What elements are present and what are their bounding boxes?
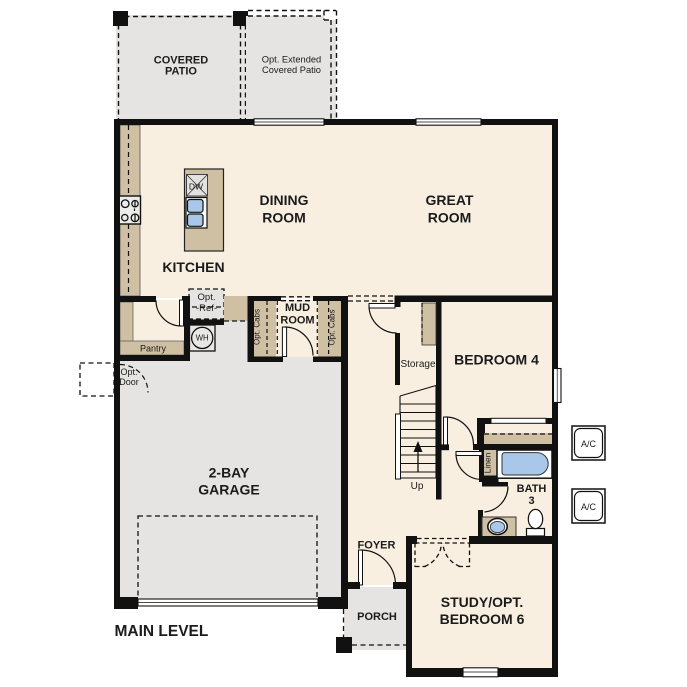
svg-text:PATIO: PATIO — [165, 66, 197, 78]
svg-text:DINING: DINING — [260, 192, 309, 208]
svg-text:Pantry: Pantry — [140, 344, 167, 354]
svg-text:Covered Patio: Covered Patio — [262, 65, 321, 75]
svg-text:ROOM: ROOM — [428, 210, 472, 226]
svg-text:Up: Up — [411, 481, 424, 492]
svg-text:MUD: MUD — [285, 302, 310, 314]
svg-text:3: 3 — [528, 495, 534, 507]
svg-text:Opt.: Opt. — [120, 367, 137, 377]
svg-text:KITCHEN: KITCHEN — [162, 259, 224, 275]
svg-text:DW: DW — [189, 182, 203, 192]
svg-text:Door: Door — [119, 377, 139, 387]
svg-text:2-BAY: 2-BAY — [209, 465, 250, 481]
svg-text:Opt. Extended: Opt. Extended — [262, 55, 321, 65]
svg-text:MAIN LEVEL: MAIN LEVEL — [115, 623, 209, 640]
svg-text:Storage: Storage — [400, 359, 435, 370]
svg-text:GARAGE: GARAGE — [198, 482, 259, 498]
svg-text:ROOM: ROOM — [262, 210, 306, 226]
svg-text:A/C: A/C — [581, 502, 597, 512]
svg-text:BEDROOM 4: BEDROOM 4 — [454, 352, 539, 368]
svg-text:BATH: BATH — [517, 483, 547, 495]
svg-text:WH: WH — [196, 334, 209, 343]
svg-text:STUDY/OPT.: STUDY/OPT. — [441, 594, 523, 610]
svg-text:ROOM: ROOM — [280, 315, 314, 327]
svg-text:Opt. Cabs: Opt. Cabs — [328, 309, 337, 345]
svg-text:Opt.: Opt. — [198, 292, 216, 303]
svg-text:GREAT: GREAT — [426, 192, 474, 208]
svg-text:-Ref-: -Ref- — [196, 303, 217, 314]
svg-text:A/C: A/C — [581, 439, 597, 449]
svg-text:PORCH: PORCH — [357, 611, 397, 623]
svg-text:BEDROOM 6: BEDROOM 6 — [440, 611, 525, 627]
svg-text:Linen: Linen — [483, 452, 493, 473]
